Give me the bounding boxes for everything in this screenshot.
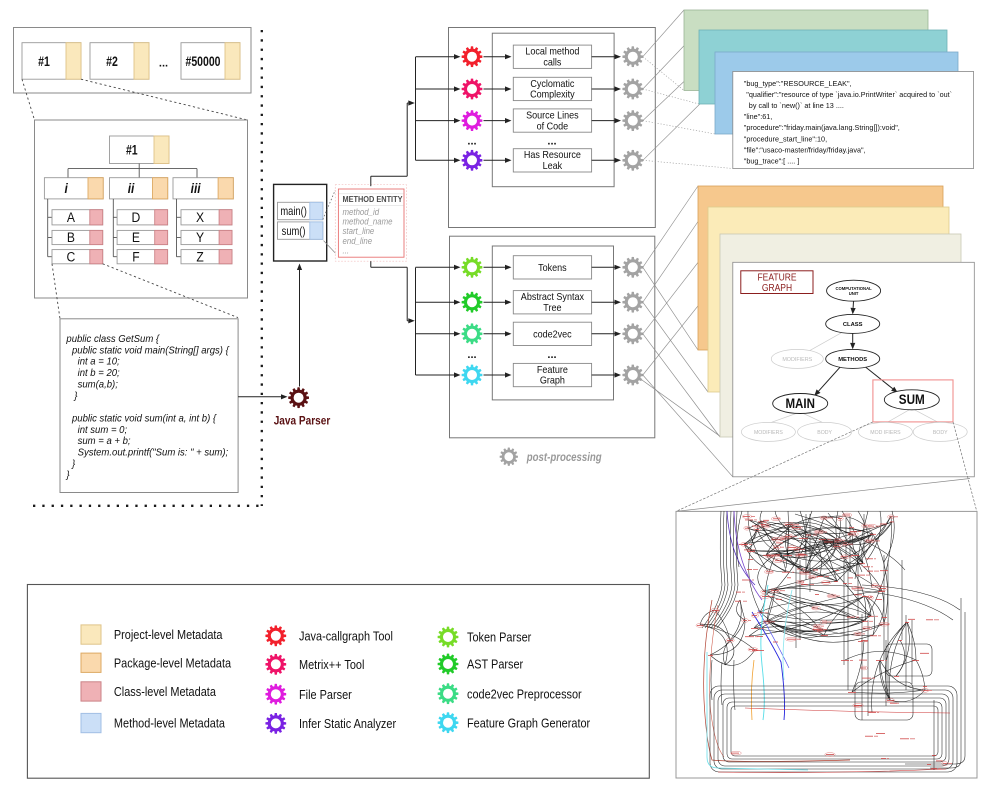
svg-text:MOD IFIERS: MOD IFIERS [870, 430, 901, 436]
svg-text:ii: ii [128, 180, 136, 196]
svg-text:iii: iii [191, 180, 202, 196]
svg-text:BODY: BODY [933, 430, 948, 436]
svg-text:method_id: method_id [343, 207, 380, 217]
svg-text:...: ... [343, 245, 350, 255]
svg-text:FEATURE: FEATURE [758, 273, 797, 284]
svg-text:"bug_type":"RESOURCE_LEAK",: "bug_type":"RESOURCE_LEAK", [744, 79, 852, 88]
svg-text:SUM: SUM [899, 391, 925, 407]
svg-text:Tokens: Tokens [538, 263, 567, 274]
svg-text:}: } [73, 391, 78, 402]
svg-text:...: ... [547, 349, 556, 361]
svg-text:Graph: Graph [540, 376, 565, 387]
svg-text:...: ... [547, 136, 556, 148]
svg-text:public static void main(String: public static void main(String[] args) { [71, 345, 230, 356]
svg-text:Z: Z [196, 249, 203, 264]
svg-text:int b = 20;: int b = 20; [78, 368, 120, 379]
svg-text:Has Resource: Has Resource [524, 150, 581, 161]
svg-text:Infer Static Analyzer: Infer Static Analyzer [299, 716, 397, 731]
svg-text:start_line: start_line [343, 226, 375, 236]
svg-text:System.out.printf("Sum is: " +: System.out.printf("Sum is: " + sum); [78, 448, 229, 459]
svg-text:MAIN: MAIN [785, 395, 815, 411]
svg-text:Package-level Metadata: Package-level Metadata [114, 655, 232, 670]
svg-text:CLASS: CLASS [843, 322, 863, 328]
svg-text:code2vec Preprocessor: code2vec Preprocessor [467, 686, 582, 701]
svg-text:METHODS: METHODS [838, 357, 867, 363]
svg-text:#2: #2 [106, 53, 118, 69]
svg-text:"line":61,: "line":61, [744, 112, 773, 121]
svg-text:...: ... [467, 349, 476, 361]
svg-text:Y: Y [196, 230, 204, 245]
svg-text:by call to `new()` at line 13: by call to `new()` at line 13 .... [749, 101, 844, 110]
svg-text:Token Parser: Token Parser [467, 630, 532, 645]
svg-text:BODY: BODY [817, 430, 832, 436]
svg-text:Method-level Metadata: Method-level Metadata [114, 716, 226, 731]
svg-text:int a = 10;: int a = 10; [78, 357, 120, 368]
svg-text:}: } [65, 470, 70, 481]
svg-text:...: ... [467, 136, 476, 148]
svg-text:"qualifier":"resource of type: "qualifier":"resource of type `java.io.P… [746, 90, 952, 99]
svg-text:F: F [132, 249, 139, 264]
svg-text:X: X [196, 210, 204, 225]
svg-text:"bug_trace":[ .... ]: "bug_trace":[ .... ] [744, 157, 800, 166]
svg-text:D: D [132, 210, 141, 225]
svg-text:#1: #1 [126, 143, 138, 158]
svg-text:...: ... [159, 58, 168, 70]
svg-text:Class-level Metadata: Class-level Metadata [114, 684, 217, 699]
svg-text:sum(): sum() [282, 224, 306, 238]
svg-text:C: C [67, 249, 76, 264]
svg-text:UNIT: UNIT [849, 291, 859, 296]
svg-text:end_line: end_line [343, 236, 373, 246]
svg-text:"procedure_start_line":10,: "procedure_start_line":10, [744, 134, 827, 143]
svg-text:AST Parser: AST Parser [467, 657, 524, 672]
svg-text:File Parser: File Parser [299, 687, 352, 702]
svg-text:public static void sum(int a,: public static void sum(int a, int b) { [71, 414, 217, 425]
svg-text:main(): main() [280, 204, 307, 218]
svg-text:}: } [71, 459, 76, 470]
svg-text:Source Lines: Source Lines [526, 110, 579, 121]
svg-text:Metrix++ Tool: Metrix++ Tool [299, 657, 364, 672]
svg-text:MODIFIERS: MODIFIERS [754, 430, 783, 436]
svg-text:Local method: Local method [525, 47, 579, 58]
svg-text:Java-callgraph Tool: Java-callgraph Tool [299, 628, 393, 643]
svg-text:#50000: #50000 [186, 53, 221, 69]
svg-text:public class GetSum {: public class GetSum { [65, 334, 160, 345]
svg-text:Feature: Feature [537, 365, 568, 376]
svg-text:"file":"usaco-master/friday/fr: "file":"usaco-master/friday/friday.java"… [744, 145, 866, 154]
svg-text:int sum = 0;: int sum = 0; [78, 425, 128, 436]
svg-text:Project-level Metadata: Project-level Metadata [114, 627, 223, 642]
svg-text:Feature Graph Generator: Feature Graph Generator [467, 715, 591, 730]
svg-text:Abstract Syntax: Abstract Syntax [521, 292, 585, 303]
svg-text:sum(a,b);: sum(a,b); [78, 379, 118, 390]
svg-text:Tree: Tree [543, 303, 561, 314]
svg-text:Leak: Leak [543, 161, 563, 172]
svg-text:code2vec: code2vec [533, 330, 572, 341]
svg-text:#1: #1 [38, 53, 50, 69]
svg-text:Complexity: Complexity [530, 90, 575, 101]
svg-text:calls: calls [543, 57, 561, 68]
svg-text:method_name: method_name [343, 217, 393, 227]
svg-text:METHOD ENTITY: METHOD ENTITY [343, 195, 403, 204]
svg-text:post-processing: post-processing [526, 450, 602, 464]
svg-text:A: A [67, 210, 75, 225]
svg-text:Java Parser: Java Parser [274, 414, 331, 428]
svg-text:E: E [132, 230, 140, 245]
svg-text:"procedure":"friday.main(java.: "procedure":"friday.main(java.lang.Strin… [744, 123, 900, 132]
svg-text:GRAPH: GRAPH [762, 283, 792, 294]
svg-text:sum = a + b;: sum = a + b; [78, 436, 131, 447]
svg-text:of Code: of Code [537, 121, 569, 132]
svg-text:B: B [67, 230, 75, 245]
svg-text:Cyclomatic: Cyclomatic [530, 79, 574, 90]
svg-text:MODIFIERS: MODIFIERS [782, 357, 812, 363]
